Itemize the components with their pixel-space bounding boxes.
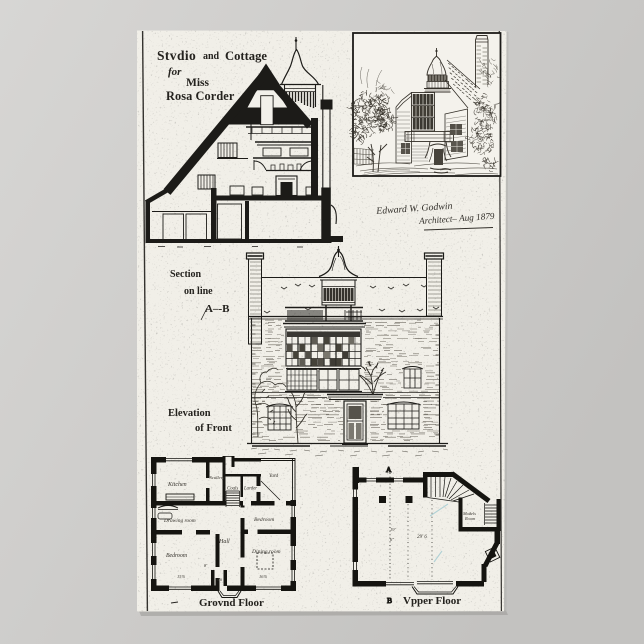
svg-text:Room: Room bbox=[464, 516, 475, 521]
svg-text:for: for bbox=[168, 66, 182, 78]
svg-text:of Front: of Front bbox=[195, 423, 232, 434]
svg-text:16'6: 16'6 bbox=[259, 574, 267, 579]
svg-text:29' 6: 29' 6 bbox=[417, 535, 427, 540]
svg-text:4'6: 4'6 bbox=[217, 577, 223, 582]
svg-text:B: B bbox=[387, 596, 392, 605]
svg-text:Grovnd Floor: Grovnd Floor bbox=[199, 597, 264, 609]
svg-text:A–-B: A–-B bbox=[205, 303, 230, 315]
svg-text:A: A bbox=[386, 465, 392, 474]
svg-text:Bedroom: Bedroom bbox=[254, 517, 274, 523]
svg-text:Stvdio: Stvdio bbox=[157, 48, 196, 63]
svg-text:Coals: Coals bbox=[227, 487, 238, 492]
svg-text:on line: on line bbox=[184, 286, 213, 297]
svg-text:Elevation: Elevation bbox=[168, 408, 211, 419]
svg-text:Vpper Floor: Vpper Floor bbox=[403, 595, 461, 607]
svg-text:Miss: Miss bbox=[186, 77, 210, 89]
svg-text:and: and bbox=[203, 51, 220, 62]
svg-text:Yard: Yard bbox=[269, 474, 279, 479]
svg-text:Dining room: Dining room bbox=[251, 549, 281, 555]
svg-text:Section: Section bbox=[170, 269, 202, 280]
svg-text:Cottage: Cottage bbox=[225, 49, 267, 63]
svg-text:Rosa Corder: Rosa Corder bbox=[166, 89, 235, 103]
svg-text:15'6: 15'6 bbox=[177, 574, 185, 579]
svg-text:Drawing room: Drawing room bbox=[163, 518, 196, 524]
svg-text:Hall: Hall bbox=[218, 539, 230, 545]
svg-text:Scullery: Scullery bbox=[210, 475, 226, 480]
svg-text:Larder: Larder bbox=[243, 487, 257, 492]
svg-text:6": 6" bbox=[390, 537, 394, 542]
svg-text:Bedroom: Bedroom bbox=[166, 553, 187, 559]
svg-text:Kitchen: Kitchen bbox=[167, 482, 187, 488]
